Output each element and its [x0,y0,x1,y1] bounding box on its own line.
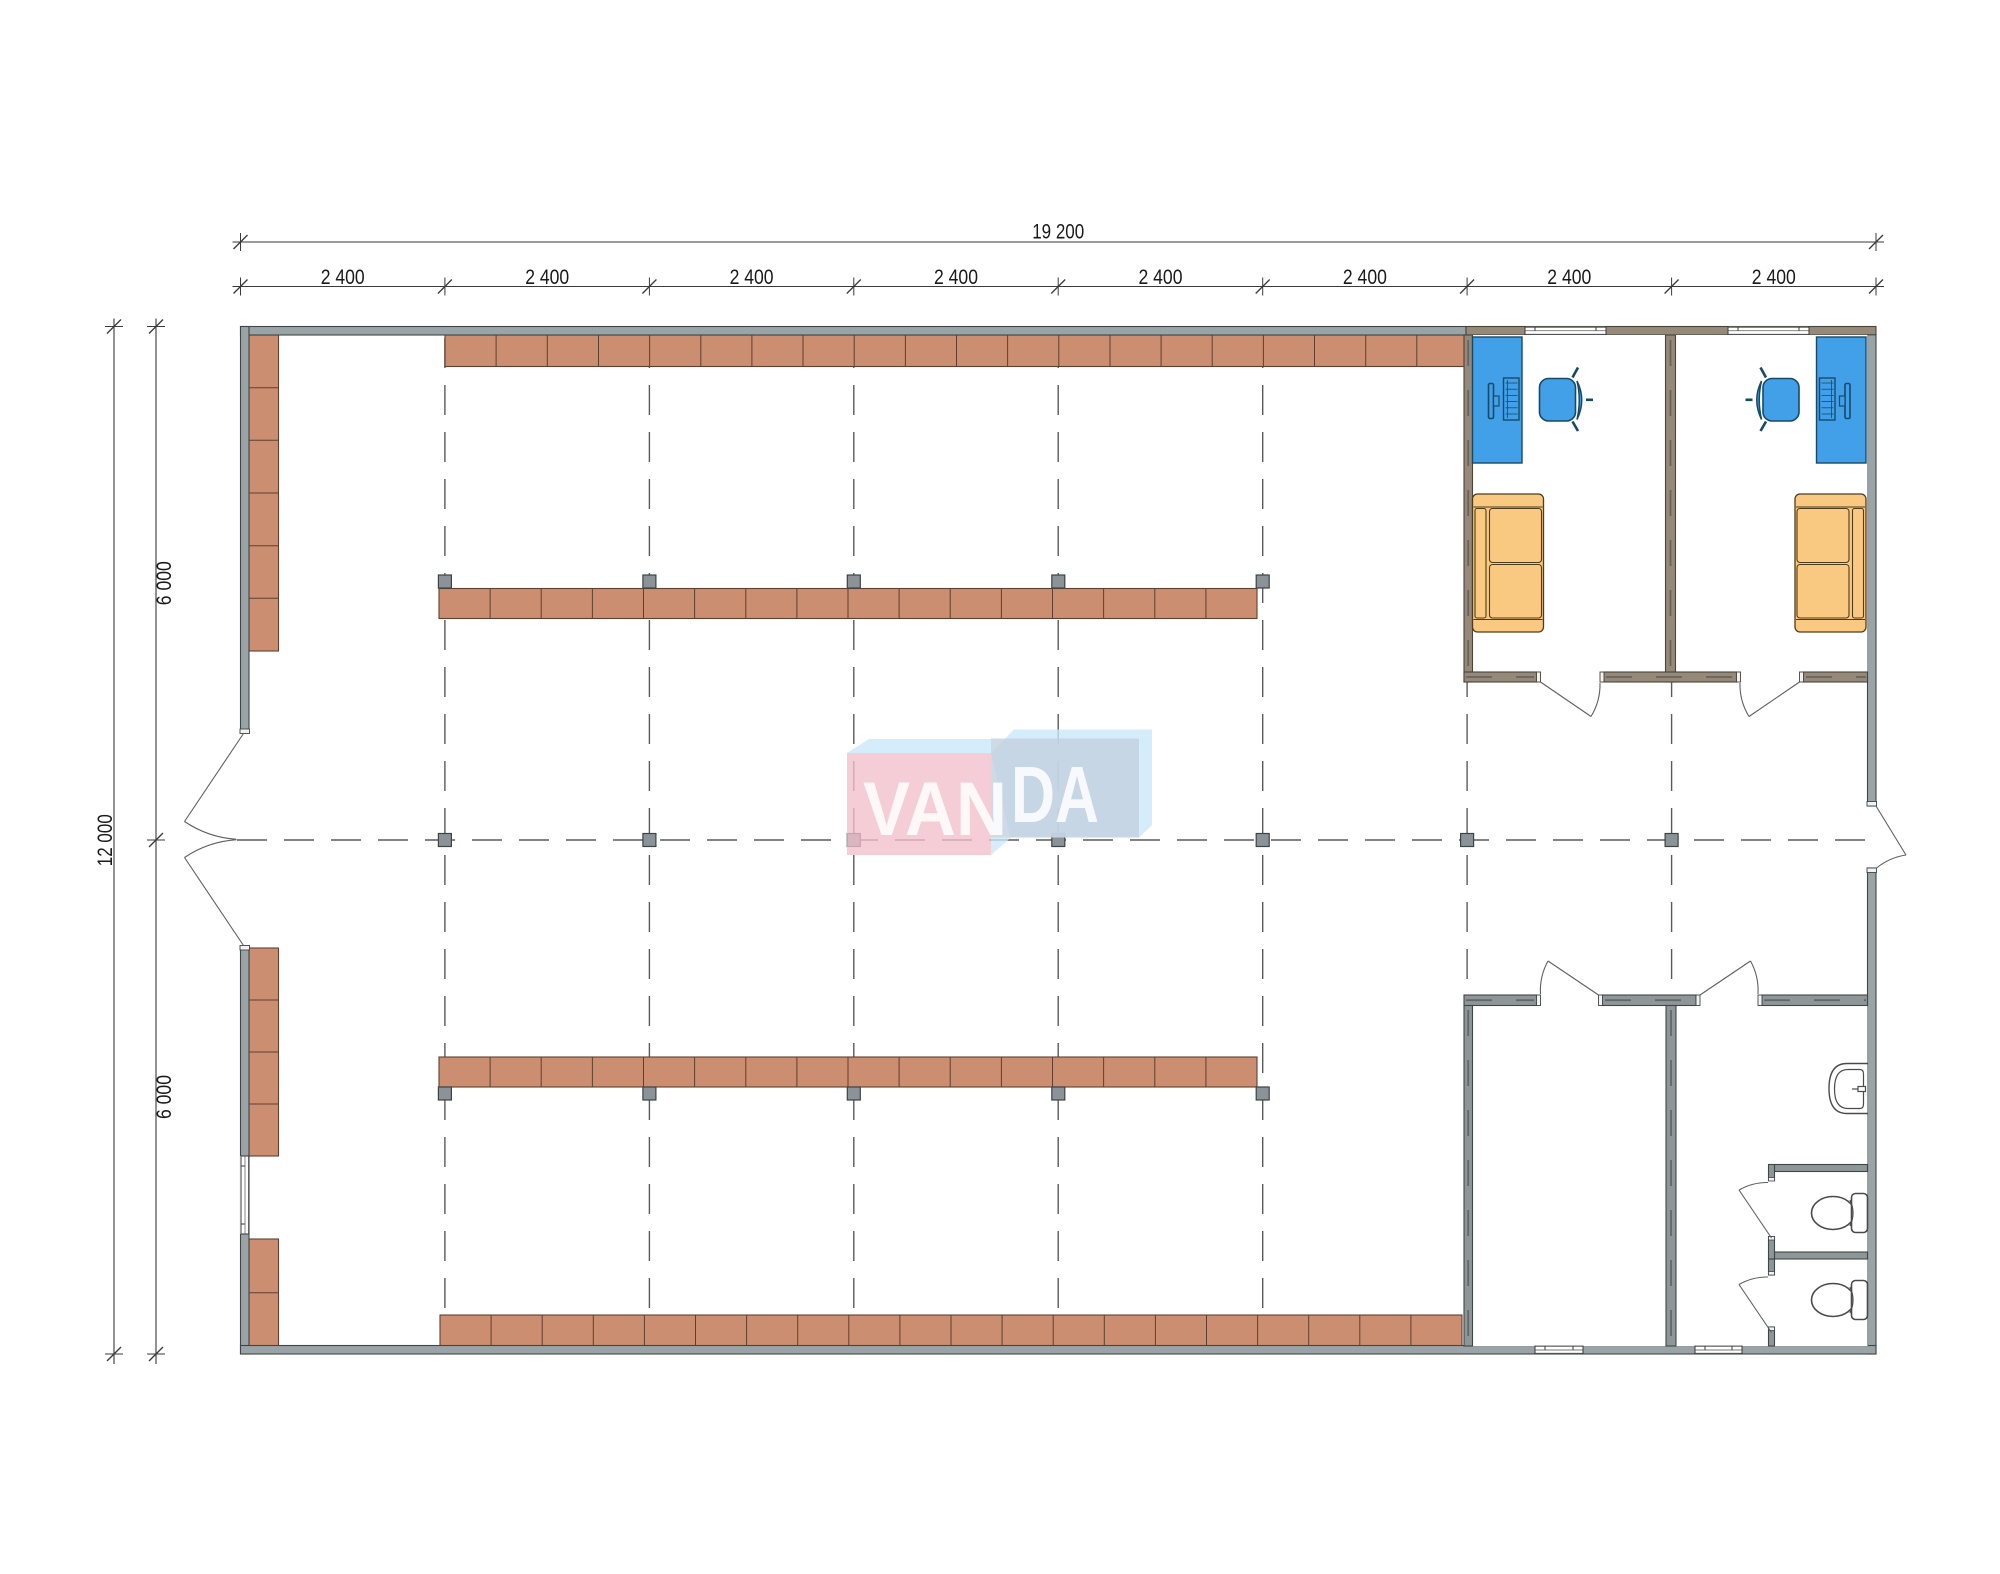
svg-text:19 200: 19 200 [1032,221,1084,244]
svg-text:2 400: 2 400 [321,266,365,289]
svg-text:12 000: 12 000 [94,814,117,866]
svg-text:6 000: 6 000 [153,1075,176,1119]
svg-text:2 400: 2 400 [1752,266,1796,289]
svg-text:2 400: 2 400 [1139,266,1183,289]
svg-text:6 000: 6 000 [153,561,176,605]
svg-text:2 400: 2 400 [730,266,774,289]
svg-text:2 400: 2 400 [934,266,978,289]
svg-text:2 400: 2 400 [1343,266,1387,289]
svg-text:2 400: 2 400 [525,266,569,289]
svg-text:DA: DA [1011,750,1099,839]
svg-text:2 400: 2 400 [1547,266,1591,289]
svg-text:VAN: VAN [863,767,1007,852]
